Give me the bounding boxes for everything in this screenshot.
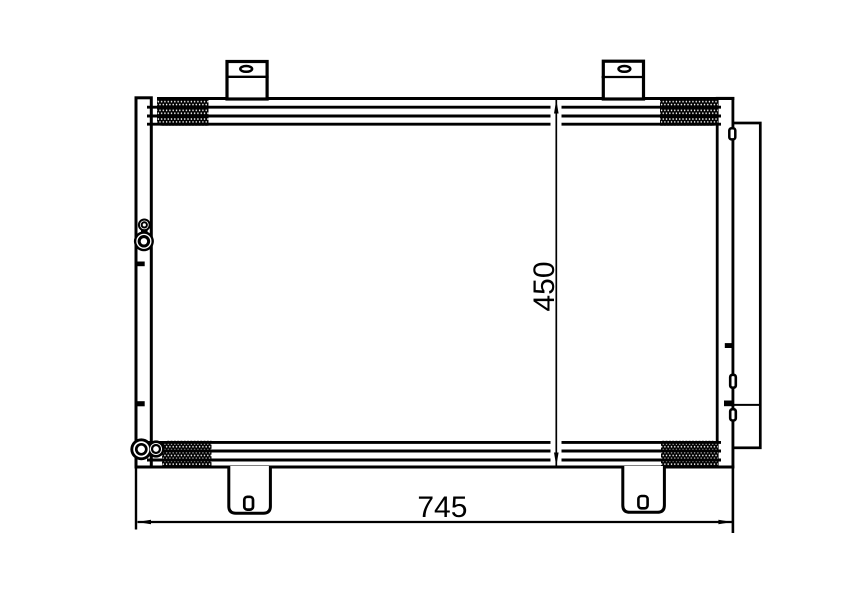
svg-text:450: 450 bbox=[528, 261, 561, 311]
svg-text:745: 745 bbox=[417, 491, 467, 524]
